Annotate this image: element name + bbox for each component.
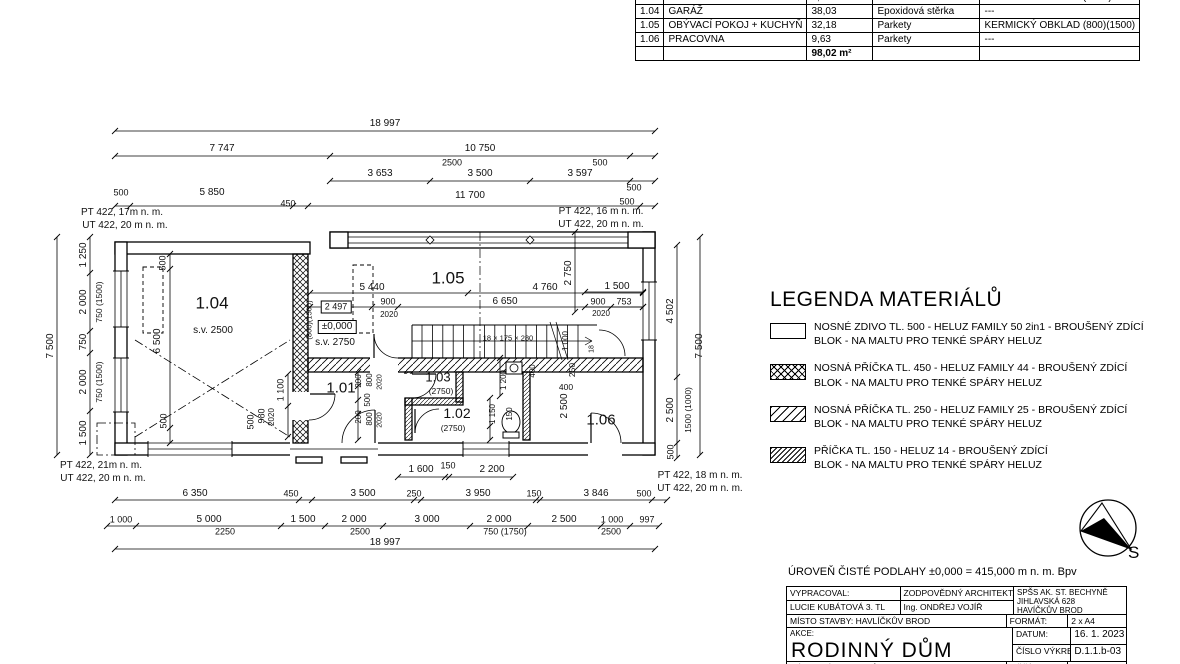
dim-label: 2 000: [486, 515, 511, 525]
dim-label: 3 846: [583, 489, 608, 499]
room-number-label: 1.04: [195, 295, 228, 312]
dim-label: 4 760: [532, 283, 557, 293]
dim-label: 18 997: [370, 119, 401, 129]
dim-label: 2020: [377, 412, 384, 428]
room-table-cell: PRACOVNA: [664, 33, 807, 47]
dim-label: 900: [380, 298, 395, 307]
compass-south-label: S: [1128, 543, 1139, 562]
room-table-cell: Parkety: [873, 19, 980, 33]
dim-label: 2020: [377, 374, 384, 390]
north-arrow-icon: S: [1072, 492, 1150, 570]
dim-label: (2750): [441, 424, 466, 433]
dim-label: PT 422, 21m n. m.: [60, 461, 142, 471]
legend-item: NOSNÁ PŘÍČKA TL. 450 - HELUZ FAMILY 44 -…: [770, 361, 1180, 389]
dim-label: PT 422, 18 m n. m.: [658, 471, 743, 481]
vypracoval-label: VYPRACOVAL:: [787, 587, 901, 600]
room-table-row: 1.04GARÁŽ38,03Epoxidová stěrka---: [636, 5, 1140, 19]
room-table-cell: [636, 47, 664, 61]
dim-label: 753: [616, 298, 631, 307]
room-table-cell: [873, 47, 980, 61]
dim-label: 2 200: [479, 465, 504, 475]
dim-label: 150: [506, 407, 514, 420]
room-table-cell: 32,18: [807, 19, 873, 33]
dim-label: PT 422, 16 m n. m.: [559, 207, 644, 217]
dim-label: 980: [258, 408, 267, 423]
room-table-cell: ---: [980, 33, 1140, 47]
legend-item-text: NOSNÁ PŘÍČKA TL. 450 - HELUZ FAMILY 44 -…: [814, 361, 1127, 389]
dim-label: 200: [355, 410, 363, 423]
dim-label: 2 000: [341, 515, 366, 525]
dim-label: 2020: [268, 408, 276, 426]
dim-label: 11 700: [455, 191, 485, 201]
format-value: 2 x A4: [1068, 615, 1126, 627]
room-table-cell: KERMICKÝ OBKLAD (800)(1500): [980, 19, 1140, 33]
dim-label: UT 422, 20 m n. m.: [60, 474, 145, 484]
dim-label: 1 000: [601, 516, 624, 525]
dim-label: 500: [667, 444, 676, 459]
dim-label: 1 000: [110, 516, 133, 525]
dim-label: 2 500: [666, 397, 676, 422]
room-table-cell: [664, 47, 807, 61]
dim-label: 18: [589, 345, 596, 353]
room-number-label: 1.03: [425, 371, 450, 384]
dim-label: 1 200: [500, 370, 508, 390]
room-number-label: 1.02: [443, 406, 470, 420]
room-table-cell: 1.05: [636, 19, 664, 33]
room-table-cell: 9,63: [807, 33, 873, 47]
dim-label: 2 497: [321, 301, 352, 314]
room-table-cell: 98,02 m²: [807, 47, 873, 61]
dim-label: 2500: [350, 528, 370, 537]
dim-label: 3 500: [350, 489, 375, 499]
dim-label: 200: [355, 374, 363, 387]
school-address: SPŠS AK. ST. BECHYNĚ JIHLAVSKÁ 628 HAVÍČ…: [1014, 587, 1126, 614]
dim-label: 500: [364, 393, 372, 406]
dim-label: 250: [406, 490, 421, 499]
dim-label: 7 500: [695, 333, 705, 358]
dim-label: 10 750: [465, 144, 496, 154]
hatch-fine-swatch-icon: [770, 447, 806, 463]
legend-item-text: PŘÍČKA TL. 150 - HELUZ 14 - BROUŠENÝ ZDÍ…: [814, 444, 1048, 472]
architekt-value: Ing. ONDŘEJ VOJÍŘ: [901, 601, 1014, 614]
dim-label: 750 (1750): [483, 528, 527, 537]
materials-legend: LEGENDA MATERIÁLŮ NOSNÉ ZDIVO TL. 500 - …: [770, 288, 1180, 485]
dim-label: 500: [636, 490, 651, 499]
dim-label: 450: [280, 200, 295, 209]
dim-label: 1 000: [562, 331, 570, 351]
misto-stavby: MÍSTO STAVBY: HAVLÍČKŮV BROD: [787, 615, 1007, 627]
cislo-value: D.1.1.b-03: [1071, 645, 1126, 661]
dim-label: 500: [113, 189, 128, 198]
dim-label: 1 500: [79, 420, 89, 445]
dim-label: UT 422, 20 m n. m.: [558, 220, 643, 230]
room-table-row: 1.05OBÝVACÍ POKOJ + KUCHYŇ32,18ParketyKE…: [636, 19, 1140, 33]
dim-label: s.v. 2750: [315, 338, 355, 348]
legend-item: NOSNÉ ZDIVO TL. 500 - HELUZ FAMILY 50 2i…: [770, 320, 1180, 348]
dim-label: 800: [366, 412, 374, 425]
akce-label: AKCE:: [787, 628, 1012, 639]
dim-label: 2500: [601, 528, 621, 537]
dim-label: 2020: [592, 310, 610, 318]
format-label: FORMÁT:: [1007, 615, 1069, 627]
dim-label: 150: [526, 490, 541, 499]
dim-label: 2250: [215, 528, 235, 537]
dim-label: 750 (1500): [95, 361, 104, 402]
dim-label: 4 502: [666, 298, 676, 323]
dim-label: 1 500: [604, 282, 629, 292]
dim-label: 400: [559, 383, 573, 392]
datum-label: DATUM:: [1013, 628, 1071, 644]
dim-label: 400: [529, 364, 537, 377]
dim-label: 1 600: [408, 465, 433, 475]
room-table-cell: 1.04: [636, 5, 664, 19]
room-table-total-row: 98,02 m²: [636, 47, 1140, 61]
dim-label: PT 422, 17m n. m.: [81, 208, 163, 218]
legend-item: PŘÍČKA TL. 150 - HELUZ 14 - BROUŠENÝ ZDÍ…: [770, 444, 1180, 472]
room-table-cell: Parkety: [873, 33, 980, 47]
room-table-cell: ---: [980, 5, 1140, 19]
dim-label: 900: [590, 298, 605, 307]
dim-label: 5 000: [196, 515, 221, 525]
legend-item-text: NOSNÁ PŘÍČKA TL. 250 - HELUZ FAMILY 25 -…: [814, 403, 1127, 431]
dim-label: 500: [247, 414, 256, 429]
dim-label: 1500 (1000): [684, 387, 693, 433]
dim-label: UT 422, 20 m n. m.: [82, 221, 167, 231]
dim-label: 3 653: [367, 169, 392, 179]
dim-label: 1 500: [290, 515, 315, 525]
dim-label: 2 000: [79, 369, 89, 394]
dim-label: 5 850: [199, 188, 224, 198]
dim-label: 500: [159, 255, 168, 270]
solid-swatch-icon: [770, 323, 806, 339]
dim-label: 7 747: [209, 144, 234, 154]
dim-label: 750 (1500): [95, 281, 104, 322]
room-table-cell: GARÁŽ: [664, 5, 807, 19]
dim-label: 250: [568, 363, 577, 377]
room-table-cell: Epoxidová stěrka: [873, 5, 980, 19]
floor-level-note: ÚROVEŇ ČISTÉ PODLAHY ±0,000 = 415,000 m …: [788, 566, 1077, 578]
dim-label: 6 350: [182, 489, 207, 499]
dim-label: 2500: [442, 159, 462, 168]
dim-label: 1 250: [79, 242, 89, 267]
dim-label: 18 997: [370, 538, 401, 548]
dim-label: (800)(1500): [305, 300, 313, 339]
crosshatch-swatch-icon: [770, 364, 806, 380]
room-number-label: 1.01: [326, 381, 355, 396]
dim-label: 450: [283, 490, 298, 499]
dim-label: 2 750: [564, 260, 574, 285]
hatch-swatch-icon: [770, 406, 806, 422]
dim-label: 2 500: [560, 393, 570, 418]
cislo-label: ČÍSLO VÝKRESU:: [1013, 645, 1071, 661]
dim-label: 500: [592, 159, 607, 168]
room-number-label: 1.06: [586, 413, 615, 428]
dim-label: 800: [366, 373, 374, 386]
dim-label: 2 000: [79, 289, 89, 314]
dim-label: 6 650: [492, 297, 517, 307]
dim-label: 5 440: [359, 283, 384, 293]
dim-label: 7 500: [46, 333, 56, 358]
dim-label: 18 × 175 × 280: [483, 334, 533, 342]
dim-label: 750: [79, 334, 89, 351]
dim-label: 2 500: [551, 515, 576, 525]
dim-label: 150: [440, 462, 455, 471]
room-table-cell: OBÝVACÍ POKOJ + KUCHYŇ: [664, 19, 807, 33]
drawing-sheet: 18 9977 74710 75025005003 6533 5003 5975…: [0, 0, 1180, 664]
datum-value: 16. 1. 2023: [1071, 628, 1126, 644]
dim-label: 500: [626, 184, 641, 193]
dim-label: 1 100: [277, 379, 286, 402]
dim-label: 1 150: [489, 404, 497, 424]
dim-label: UT 422, 20 m n. m.: [657, 484, 742, 494]
room-number-label: 1.05: [431, 270, 464, 287]
dim-label: 500: [160, 413, 169, 428]
legend-item: NOSNÁ PŘÍČKA TL. 250 - HELUZ FAMILY 25 -…: [770, 403, 1180, 431]
dim-label: ±0,000: [318, 320, 357, 334]
dim-label: 3 500: [467, 169, 492, 179]
title-block: VYPRACOVAL: ZODPOVĚDNÝ ARCHITEKT: LUCIE …: [786, 586, 1127, 664]
room-table-cell: [980, 47, 1140, 61]
project-title: RODINNÝ DŮM: [787, 639, 1012, 664]
dim-label: 3 950: [465, 489, 490, 499]
legend-title: LEGENDA MATERIÁLŮ: [770, 288, 1180, 312]
dim-label: 6 500: [153, 328, 163, 353]
dim-label: 3 000: [414, 515, 439, 525]
dim-label: 2020: [380, 311, 398, 319]
room-table-cell: 38,03: [807, 5, 873, 19]
vypracoval-value: LUCIE KUBÁTOVÁ 3. TL: [787, 601, 901, 614]
dim-label: 997: [639, 516, 654, 525]
dim-label: s.v. 2500: [193, 326, 233, 336]
room-table-row: 1.06PRACOVNA9,63Parkety---: [636, 33, 1140, 47]
room-table-cell: 1.06: [636, 33, 664, 47]
dim-label: (2750): [429, 387, 454, 396]
room-table: 1.03WC1,92Keramická dlažbaKERMICKÝ OBKLA…: [635, 0, 1140, 61]
architekt-label: ZODPOVĚDNÝ ARCHITEKT:: [901, 587, 1014, 600]
legend-item-text: NOSNÉ ZDIVO TL. 500 - HELUZ FAMILY 50 2i…: [814, 320, 1144, 348]
dim-label: 3 597: [567, 169, 592, 179]
